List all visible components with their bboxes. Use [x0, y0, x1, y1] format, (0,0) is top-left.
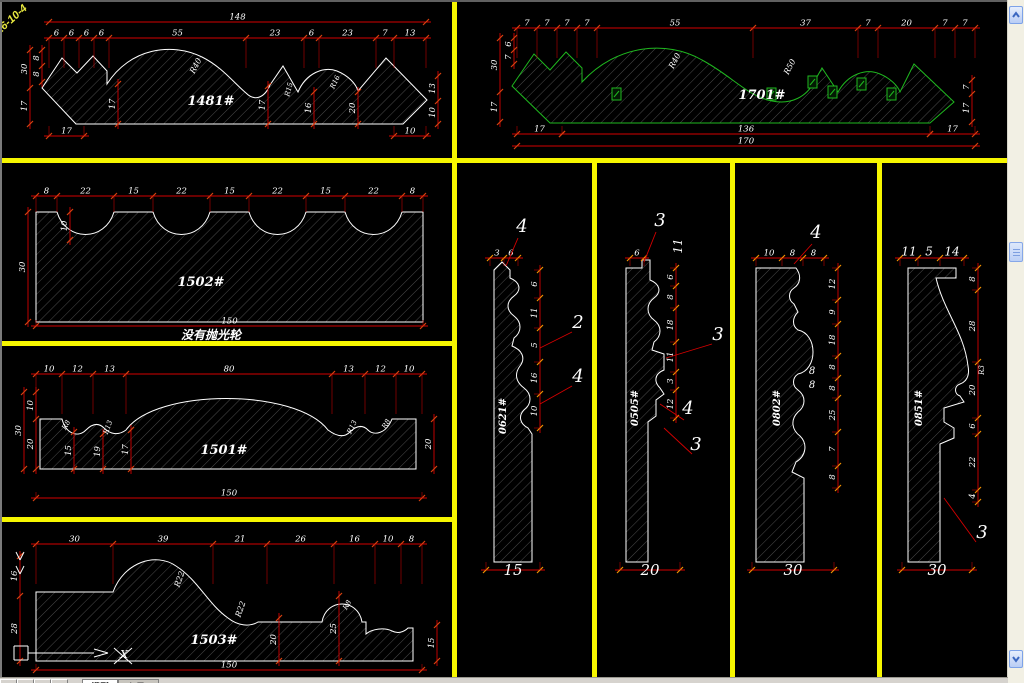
- svg-text:20: 20: [424, 438, 434, 450]
- chevron-down-icon: [1010, 651, 1022, 667]
- svg-text:7: 7: [962, 84, 972, 90]
- svg-text:37: 37: [800, 19, 811, 29]
- svg-text:7: 7: [942, 19, 948, 29]
- tab-model[interactable]: 模型: [82, 679, 118, 683]
- svg-text:0802#: 0802#: [772, 390, 783, 426]
- svg-text:6: 6: [54, 29, 60, 39]
- svg-text:6: 6: [309, 29, 315, 39]
- svg-text:1501#: 1501#: [200, 443, 247, 458]
- svg-text:2: 2: [571, 312, 583, 333]
- svg-text:8: 8: [410, 187, 416, 197]
- svg-text:10: 10: [428, 107, 438, 118]
- svg-text:6: 6: [530, 281, 540, 287]
- svg-text:8: 8: [44, 187, 50, 197]
- svg-text:17: 17: [121, 444, 131, 455]
- svg-text:22: 22: [271, 187, 283, 197]
- scrollbar-thumb[interactable]: [1009, 242, 1023, 262]
- svg-text:4: 4: [571, 366, 583, 387]
- scroll-down-button[interactable]: [1009, 650, 1023, 668]
- tab-layout1[interactable]: 布局1: [118, 679, 159, 683]
- divider-horizontal-2: [0, 341, 452, 346]
- svg-text:18: 18: [666, 319, 676, 330]
- svg-text:0621#: 0621#: [498, 398, 509, 434]
- svg-text:5: 5: [530, 342, 540, 347]
- svg-text:30: 30: [18, 261, 28, 272]
- svg-text:26: 26: [294, 535, 306, 545]
- vertical-scrollbar[interactable]: [1007, 0, 1024, 683]
- cad-drawing-window: 1486666552362371317103017881310171716201…: [0, 0, 1024, 683]
- tab-nav-first-button[interactable]: |◀: [0, 679, 17, 683]
- svg-text:16: 16: [349, 535, 360, 545]
- chevron-up-icon: [1010, 7, 1022, 23]
- svg-text:23: 23: [269, 29, 281, 39]
- drawing-canvas[interactable]: 1486666552362371317103017881310171716201…: [0, 0, 1008, 677]
- svg-text:80: 80: [224, 365, 235, 375]
- svg-text:10: 10: [383, 535, 394, 545]
- tab-nav-prev-button[interactable]: ◀: [17, 679, 34, 683]
- window-top-edge: [0, 0, 1008, 2]
- svg-text:3: 3: [666, 378, 676, 383]
- svg-text:6: 6: [69, 29, 75, 39]
- svg-text:1502#: 1502#: [177, 275, 224, 290]
- grip-lines-icon: [1013, 249, 1020, 257]
- svg-text:4: 4: [968, 493, 978, 499]
- window-left-edge: [0, 0, 2, 683]
- svg-text:15: 15: [128, 187, 139, 197]
- svg-text:13: 13: [104, 365, 115, 375]
- svg-text:4: 4: [681, 398, 693, 419]
- svg-text:17: 17: [947, 125, 958, 135]
- svg-text:0505#: 0505#: [630, 390, 641, 426]
- svg-text:7: 7: [865, 19, 871, 29]
- svg-text:17: 17: [20, 100, 30, 111]
- svg-text:12: 12: [666, 399, 676, 410]
- svg-text:8: 8: [828, 364, 838, 370]
- svg-text:20: 20: [900, 19, 912, 29]
- panel-1501-drawing: 10121380131210150301020201519171501#R8R1…: [6, 346, 456, 514]
- svg-text:7: 7: [584, 19, 590, 29]
- svg-text:28: 28: [968, 320, 978, 332]
- svg-text:3: 3: [690, 434, 701, 455]
- svg-text:7: 7: [828, 446, 838, 452]
- svg-text:R3: R3: [978, 365, 986, 376]
- svg-text:17: 17: [962, 102, 972, 113]
- divider-vertical-4: [877, 163, 882, 677]
- svg-text:14: 14: [944, 245, 959, 259]
- svg-text:8: 8: [968, 276, 978, 282]
- svg-text:39: 39: [158, 535, 169, 545]
- divider-vertical-3: [730, 163, 735, 677]
- panel-1503-drawing: 303921261610815016282025151503#R22R22R8X: [6, 522, 456, 678]
- panel-0802-drawing: 108830129188825780802#488: [734, 166, 878, 677]
- svg-text:13: 13: [405, 29, 416, 39]
- svg-text:8: 8: [32, 71, 42, 77]
- svg-text:136: 136: [738, 125, 755, 135]
- svg-text:11: 11: [901, 245, 916, 259]
- svg-text:8: 8: [666, 294, 676, 300]
- svg-text:30: 30: [20, 63, 30, 74]
- svg-text:22: 22: [79, 187, 91, 197]
- svg-text:150: 150: [221, 489, 238, 499]
- panel-0621-drawing: 3615611516100621#424: [460, 166, 592, 677]
- svg-text:30: 30: [783, 561, 803, 579]
- svg-text:55: 55: [172, 29, 183, 39]
- svg-text:148: 148: [229, 13, 246, 23]
- panel-0851-drawing: 11514308282062240851#R33: [878, 166, 1008, 677]
- svg-text:8: 8: [811, 249, 817, 259]
- svg-text:1701#: 1701#: [738, 88, 785, 103]
- svg-text:10: 10: [404, 365, 415, 375]
- svg-text:13: 13: [428, 83, 438, 94]
- svg-text:X: X: [119, 648, 129, 661]
- svg-text:0851#: 0851#: [914, 390, 925, 426]
- panel-0505-drawing: 6206818113120505#311343: [596, 166, 730, 677]
- svg-text:10: 10: [405, 127, 416, 137]
- svg-text:18: 18: [828, 334, 838, 345]
- svg-text:6: 6: [99, 29, 105, 39]
- svg-text:8: 8: [809, 380, 815, 391]
- svg-text:15: 15: [503, 561, 522, 579]
- svg-text:11: 11: [666, 352, 676, 363]
- svg-text:3: 3: [712, 324, 723, 345]
- svg-text:30: 30: [490, 59, 500, 70]
- svg-text:10: 10: [60, 220, 70, 231]
- panel-1701-drawing: 777755377207717136171703017677171701#R40…: [462, 4, 1006, 158]
- svg-text:20: 20: [639, 561, 660, 579]
- svg-text:7: 7: [382, 29, 388, 39]
- svg-text:4: 4: [515, 216, 527, 237]
- layout-tab-bar: |◀ ◀ ▶ ▶| 模型 布局1: [0, 677, 1008, 683]
- svg-text:8: 8: [828, 385, 838, 391]
- svg-text:10: 10: [44, 365, 55, 375]
- svg-text:6: 6: [634, 249, 640, 259]
- svg-text:7: 7: [962, 19, 968, 29]
- svg-text:9: 9: [828, 309, 838, 315]
- svg-text:17: 17: [490, 101, 500, 112]
- svg-text:22: 22: [367, 187, 379, 197]
- svg-text:23: 23: [341, 29, 353, 39]
- svg-text:11: 11: [671, 238, 685, 253]
- svg-text:没有抛光轮: 没有抛光轮: [181, 328, 243, 342]
- svg-text:8: 8: [828, 474, 838, 480]
- svg-text:3: 3: [654, 210, 665, 231]
- divider-vertical-2: [592, 163, 597, 677]
- svg-text:17: 17: [258, 99, 268, 110]
- svg-text:3: 3: [976, 522, 987, 543]
- svg-text:22: 22: [968, 457, 978, 469]
- svg-text:R22: R22: [233, 600, 247, 619]
- divider-horizontal-1: [0, 158, 1008, 163]
- svg-text:6: 6: [968, 423, 978, 429]
- svg-text:12: 12: [375, 365, 386, 375]
- scroll-up-button[interactable]: [1009, 6, 1023, 24]
- svg-text:20: 20: [26, 438, 36, 450]
- svg-text:16: 16: [530, 372, 540, 383]
- svg-text:17: 17: [108, 98, 118, 109]
- divider-horizontal-3: [0, 517, 452, 522]
- panel-1481-drawing: 1486666552362371317103017881310171716201…: [6, 4, 452, 156]
- svg-text:30: 30: [69, 535, 80, 545]
- svg-text:8: 8: [809, 366, 815, 377]
- svg-text:25: 25: [828, 410, 838, 422]
- svg-text:4: 4: [809, 222, 821, 243]
- svg-text:30: 30: [927, 561, 947, 579]
- svg-text:5: 5: [925, 245, 933, 259]
- svg-text:21: 21: [234, 535, 246, 545]
- svg-text:R50: R50: [782, 58, 798, 77]
- svg-text:7: 7: [544, 19, 550, 29]
- svg-text:8: 8: [32, 55, 42, 61]
- svg-text:55: 55: [670, 19, 681, 29]
- panel-1502-drawing: 822152215221522815030101502#没有抛光轮: [6, 166, 456, 342]
- svg-text:12: 12: [72, 365, 83, 375]
- svg-text:6: 6: [504, 41, 514, 47]
- svg-text:20: 20: [269, 634, 279, 646]
- svg-text:150: 150: [221, 661, 238, 671]
- svg-text:16: 16: [304, 102, 314, 113]
- svg-text:22: 22: [175, 187, 187, 197]
- svg-text:15: 15: [64, 445, 74, 456]
- svg-text:12: 12: [828, 279, 838, 290]
- svg-text:19: 19: [93, 446, 103, 457]
- svg-text:30: 30: [14, 425, 24, 436]
- svg-text:11: 11: [530, 308, 540, 319]
- svg-text:170: 170: [738, 137, 755, 147]
- svg-text:10: 10: [530, 405, 540, 416]
- tab-nav-last-button[interactable]: ▶|: [51, 679, 68, 683]
- svg-text:25: 25: [329, 623, 339, 635]
- svg-text:7: 7: [504, 54, 514, 60]
- svg-text:28: 28: [10, 623, 20, 635]
- svg-text:10: 10: [26, 400, 36, 411]
- svg-text:15: 15: [224, 187, 235, 197]
- svg-text:1503#: 1503#: [190, 633, 237, 648]
- svg-text:1481#: 1481#: [187, 94, 234, 109]
- svg-text:15: 15: [427, 638, 437, 649]
- svg-text:3: 3: [494, 249, 499, 259]
- svg-text:17: 17: [534, 125, 545, 135]
- svg-text:10: 10: [764, 249, 775, 259]
- svg-text:7: 7: [524, 19, 530, 29]
- svg-text:8: 8: [409, 535, 415, 545]
- divider-vertical-1: [452, 0, 457, 677]
- svg-text:20: 20: [348, 102, 358, 114]
- svg-text:8: 8: [790, 249, 796, 259]
- svg-text:150: 150: [221, 317, 238, 327]
- svg-text:15: 15: [320, 187, 331, 197]
- svg-text:17: 17: [61, 127, 72, 137]
- svg-text:13: 13: [343, 365, 354, 375]
- tab-nav-next-button[interactable]: ▶: [34, 679, 51, 683]
- svg-text:7: 7: [564, 19, 570, 29]
- svg-text:20: 20: [968, 384, 978, 396]
- svg-text:6: 6: [84, 29, 90, 39]
- svg-text:6: 6: [666, 274, 676, 280]
